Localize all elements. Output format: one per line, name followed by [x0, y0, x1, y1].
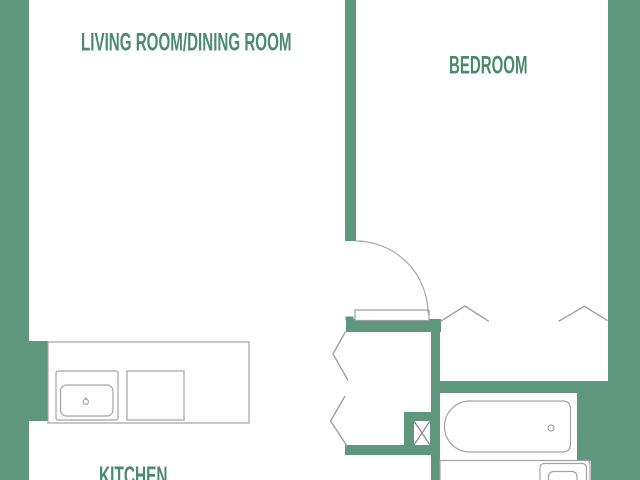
svg-text:LIVING ROOM/DINING ROOM: LIVING ROOM/DINING ROOM — [81, 29, 292, 57]
svg-text:KITCHEN: KITCHEN — [99, 462, 168, 480]
svg-text:BEDROOM: BEDROOM — [449, 52, 528, 80]
